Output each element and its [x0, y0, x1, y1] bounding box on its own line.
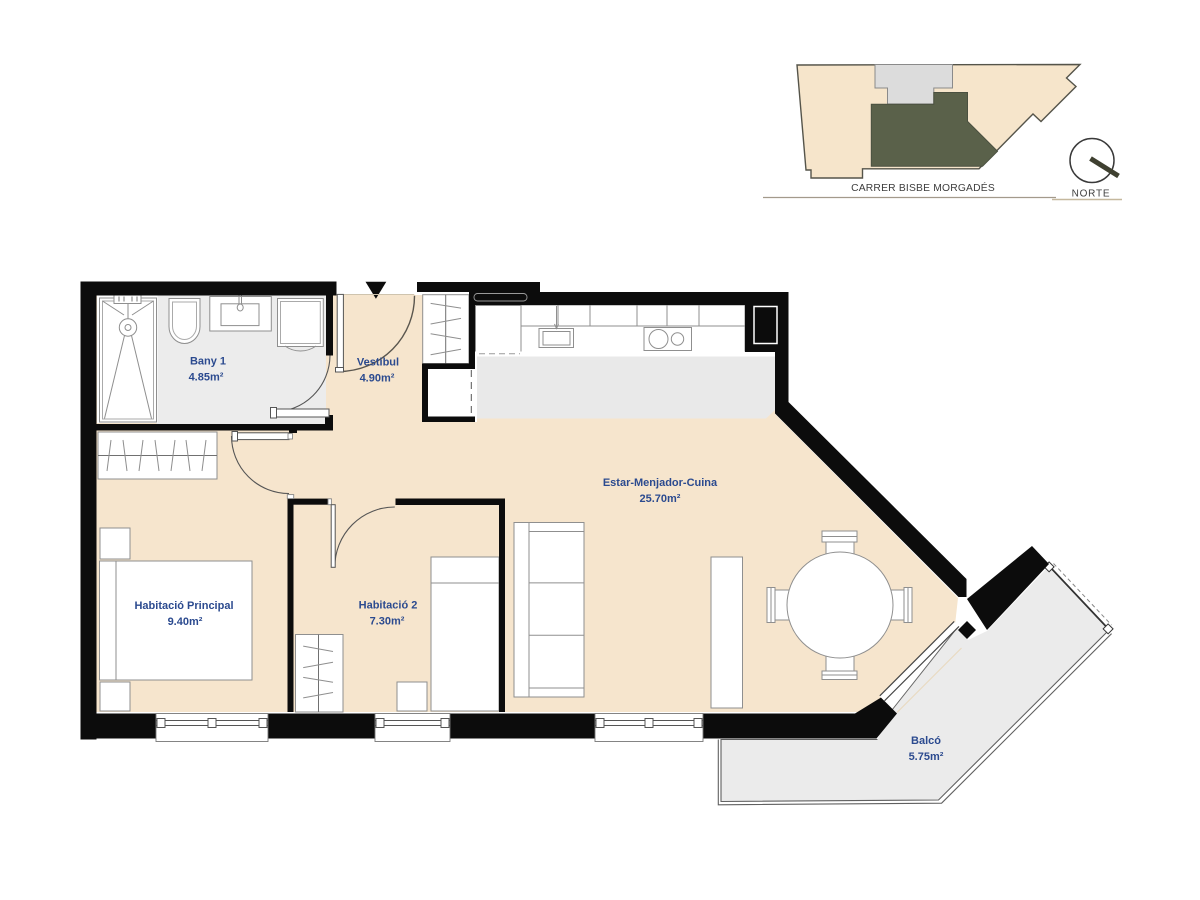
svg-text:Habitació 2: Habitació 2: [359, 600, 418, 612]
svg-text:4.85m²: 4.85m²: [189, 372, 224, 384]
svg-text:Vestibul: Vestibul: [357, 357, 399, 369]
svg-text:5.75m²: 5.75m²: [909, 751, 944, 763]
svg-text:NORTE: NORTE: [1072, 189, 1111, 200]
svg-text:9.40m²: 9.40m²: [168, 616, 203, 628]
svg-text:Habitació Principal: Habitació Principal: [134, 600, 233, 612]
svg-text:25.70m²: 25.70m²: [640, 493, 681, 505]
svg-text:4.90m²: 4.90m²: [360, 373, 395, 385]
svg-text:Estar-Menjador-Cuina: Estar-Menjador-Cuina: [603, 477, 718, 489]
svg-text:Balcó: Balcó: [911, 735, 941, 747]
svg-text:7.30m²: 7.30m²: [370, 616, 405, 628]
svg-text:Bany 1: Bany 1: [190, 356, 226, 368]
svg-text:CARRER BISBE MORGADÉS: CARRER BISBE MORGADÉS: [851, 181, 995, 194]
